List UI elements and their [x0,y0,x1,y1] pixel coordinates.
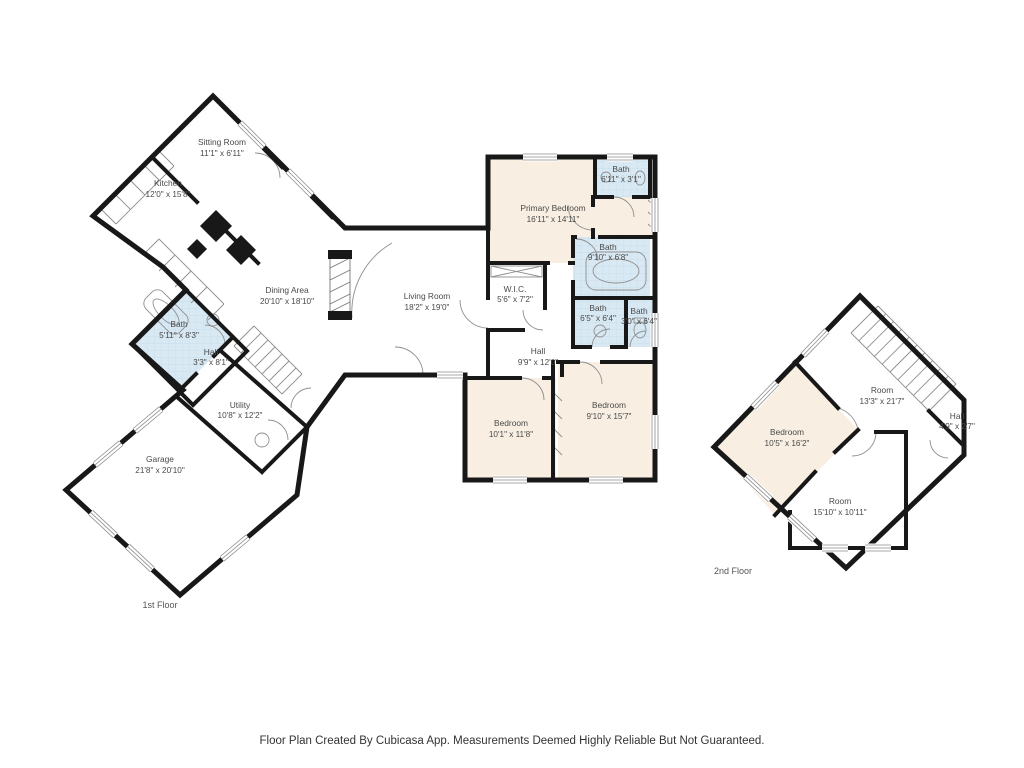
living-room-dims: 18'2" x 19'0" [405,303,450,312]
floor2-room-bottom-label: Room [829,496,851,506]
kitchen-dims: 12'0" x 15'8" [146,190,191,199]
bath-left-dims: 5'11" x 8'3" [159,331,199,340]
bath-mid-label: Bath [599,242,617,252]
floor2-hall-label: Hall [950,411,965,421]
garage-label: Garage [146,454,174,464]
bath-tr-label: Bath [612,164,630,174]
utility-label: Utility [230,400,251,410]
floor-plan-page: Sitting Room 11'1" x 6'11" Kitchen 12'0"… [0,0,1024,768]
floor2-room-top-label: Room [871,385,893,395]
floor1-title: 1st Floor [142,600,177,610]
bath-sr-label: Bath [630,306,648,316]
garage-dims: 21'8" x 20'10" [135,466,185,475]
kitchen-label: Kitchen [154,178,182,188]
bedroom-left-dims: 10'1" x 11'8" [489,430,533,439]
living-room-label: Living Room [404,291,451,301]
sitting-room-dims: 11'1" x 6'11" [200,149,244,158]
floor2-bedroom-label: Bedroom [770,427,804,437]
hall-left-dims: 3'3" x 8'1" [193,358,229,367]
hall-label: Hall [531,346,546,356]
bath-mid-dims: 9'10" x 6'8" [588,253,628,262]
primary-bedroom-label: Primary Bedroom [520,203,585,213]
wic-dims: 5'6" x 7'2" [497,295,533,304]
hall-dims: 9'9" x 12'0" [518,358,558,367]
wic-label: W.I.C. [504,284,527,294]
hall-left-label: Hall [204,347,219,357]
dining-area-label: Dining Area [265,285,309,295]
floor2-room-fills [714,296,964,568]
floor2-hall-dims: 4'9" x 2'7" [939,422,975,431]
bath-sl-dims: 6'5" x 6'4" [580,314,616,323]
footer-disclaimer: Floor Plan Created By Cubicasa App. Meas… [260,735,765,747]
bath-tr-dims: 6'11" x 3'1" [601,175,641,184]
primary-vestibule-fill [593,197,655,237]
sitting-room-label: Sitting Room [198,137,246,147]
bath-left-label: Bath [170,319,188,329]
floor1-room-fills [66,96,655,595]
dining-area-dims: 20'10" x 18'10" [260,297,314,306]
bath-sr-dims: 3'0" x 6'4" [621,317,657,326]
bedroom-left-label: Bedroom [494,418,528,428]
bath-sl-label: Bath [589,303,607,313]
utility-dims: 10'8" x 12'2" [218,411,263,420]
bedroom-right-dims: 9'10" x 15'7" [587,412,632,421]
floor2-room-bottom-dims: 15'10" x 10'11" [813,508,866,517]
floor-plan-canvas: Sitting Room 11'1" x 6'11" Kitchen 12'0"… [0,0,1024,768]
floor2-room-top-dims: 13'3" x 21'7" [860,397,905,406]
bedroom-right-label: Bedroom [592,400,626,410]
floor2-title: 2nd Floor [714,566,752,576]
primary-bedroom-dims: 16'11" x 14'11" [527,215,580,224]
floor2-bedroom-dims: 10'5" x 16'2" [765,439,810,448]
